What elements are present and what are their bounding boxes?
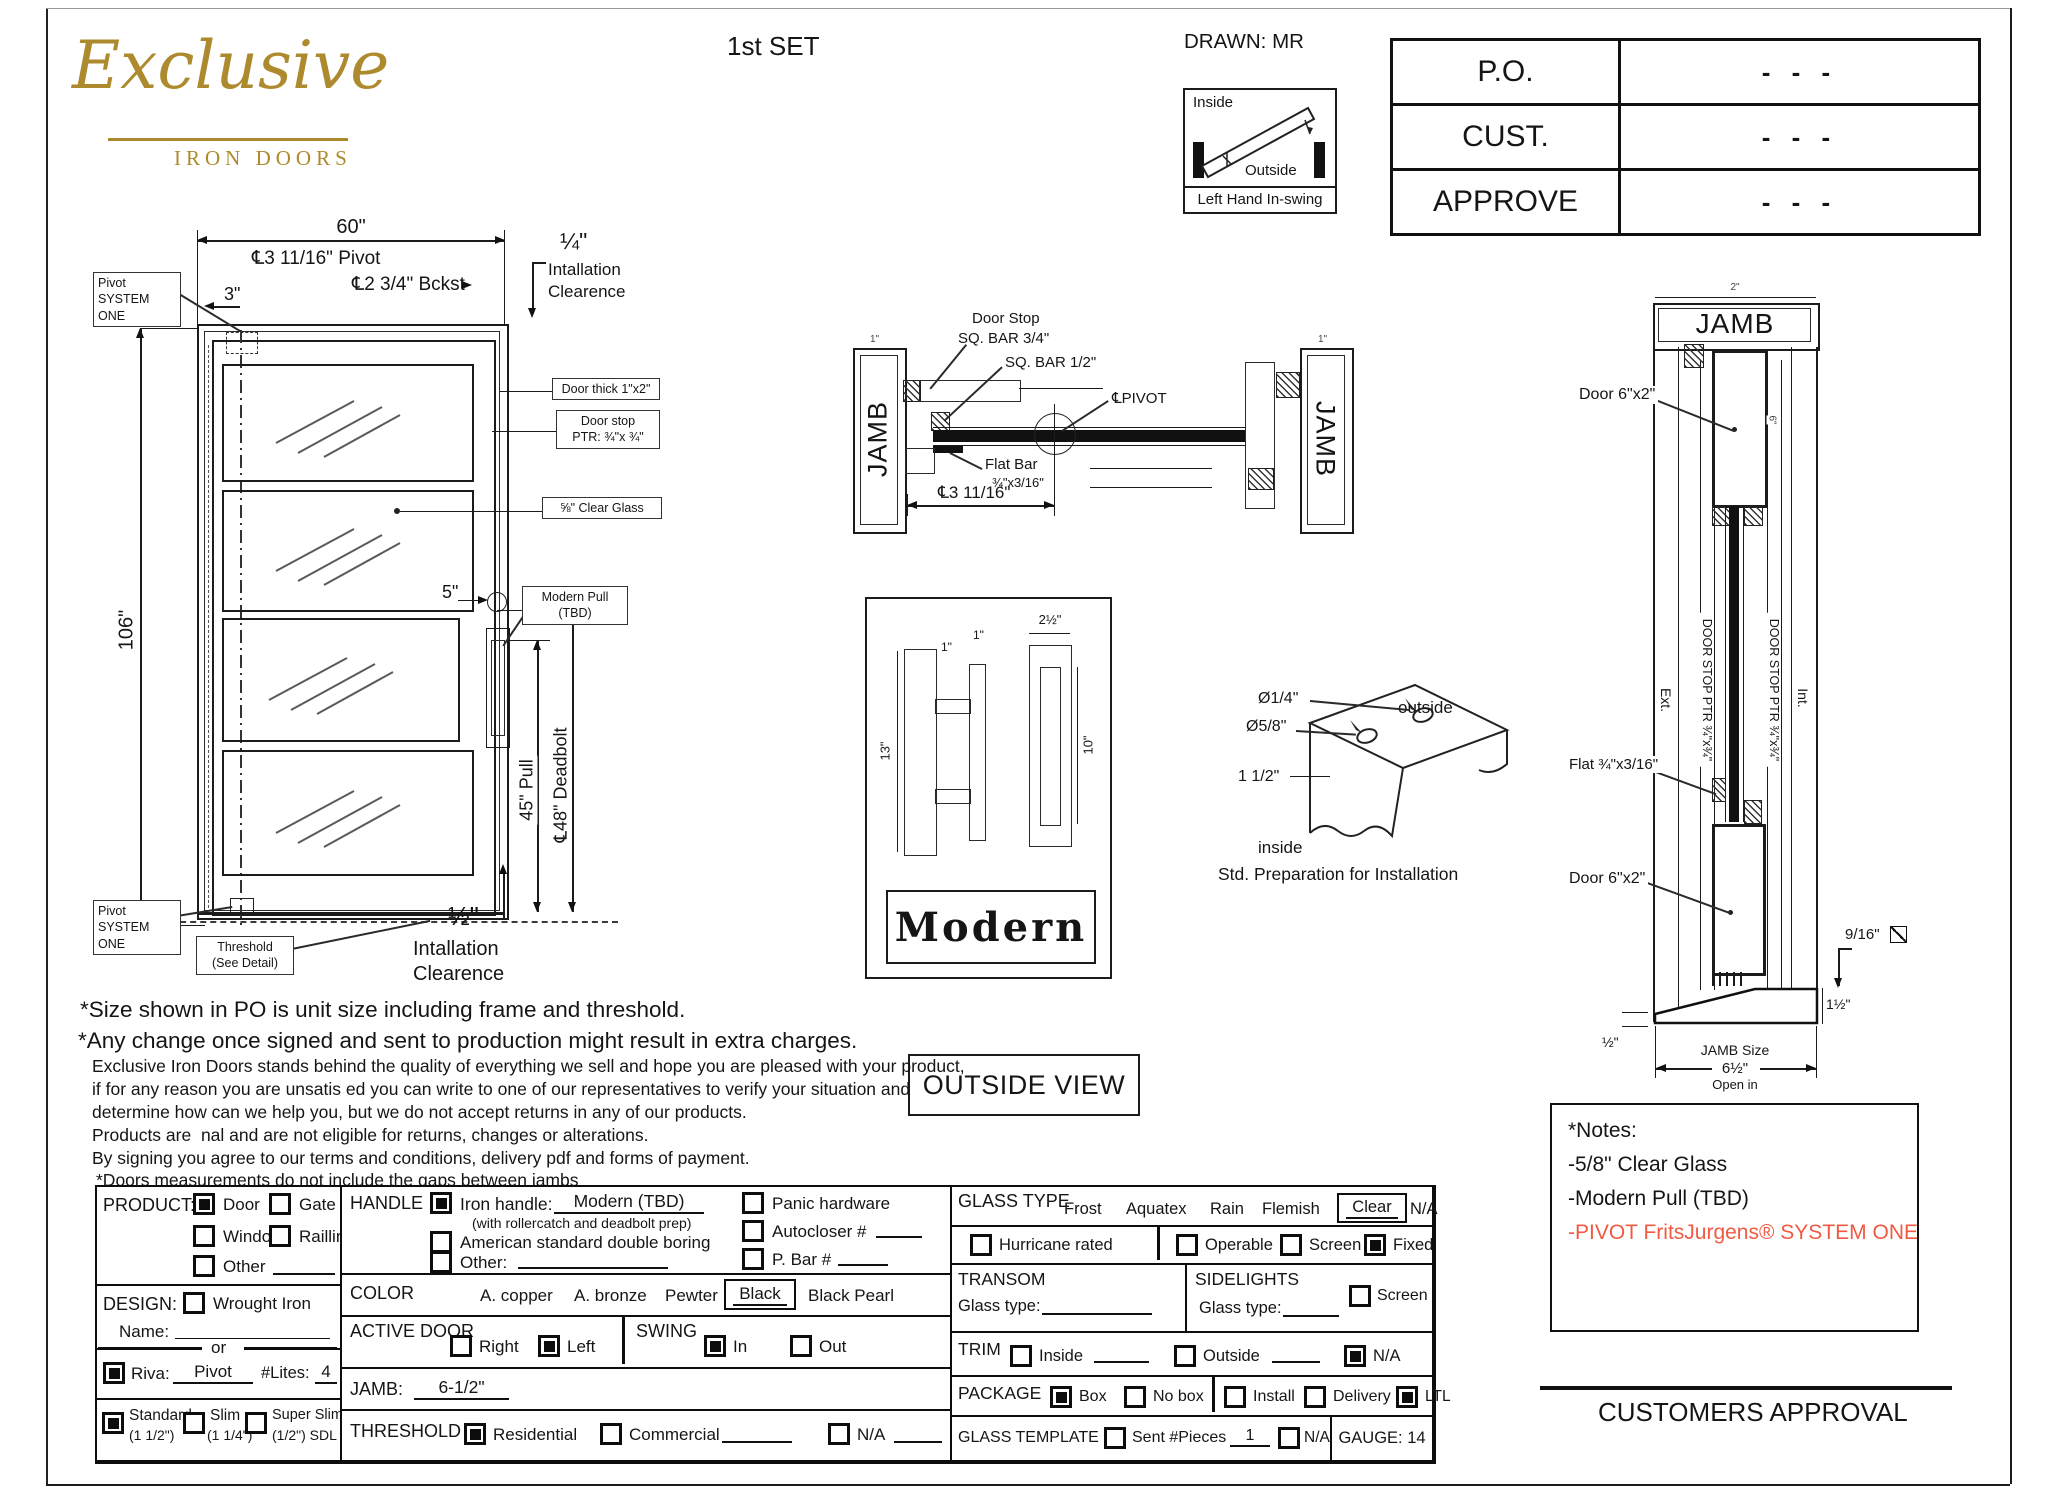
approve-label: APPROVE	[1433, 185, 1578, 219]
package-delivery-label: Delivery	[1333, 1388, 1391, 1406]
profile-section: Standard (1 1/2") Slim (1 1/4") Super Sl…	[95, 1398, 344, 1462]
panic-label: Panic hardware	[772, 1194, 890, 1214]
js-dim-6: 6"	[1767, 415, 1778, 424]
package-nobox-label: No box	[1153, 1388, 1204, 1406]
active-right-label: Right	[479, 1337, 519, 1357]
plan-dim-1-right: 1"	[1318, 334, 1327, 346]
operable-label: Operable	[1205, 1236, 1273, 1255]
border-line	[2010, 8, 2012, 1484]
product-other-label: Other	[223, 1257, 266, 1277]
glass-template-sent-checkbox[interactable]	[1104, 1427, 1126, 1449]
glass-aquatex-option[interactable]: Aquatex	[1126, 1200, 1187, 1219]
jamb-value[interactable]: 6-1/2"	[414, 1377, 509, 1400]
color-selected-value[interactable]: Black	[733, 1284, 787, 1306]
glass-marks	[258, 509, 438, 593]
trim-outside-checkbox[interactable]	[1174, 1345, 1196, 1367]
glass-flemish-option[interactable]: Flemish	[1262, 1200, 1320, 1219]
dim-arrow	[907, 501, 917, 509]
autocloser-blank[interactable]	[876, 1222, 922, 1238]
policy-line: determine how can we help you, but we do…	[92, 1102, 747, 1122]
notes-item-glass: -5/8" Clear Glass	[1568, 1153, 1727, 1177]
js-ext-label: Ext.	[1658, 688, 1674, 712]
pull-dim: 45" Pull	[517, 755, 538, 824]
swing-label: SWING	[636, 1321, 697, 1342]
package-ltl-checkbox[interactable]	[1396, 1386, 1418, 1408]
sidelights-label: SIDELIGHTS	[1195, 1269, 1299, 1289]
design-wrought-checkbox[interactable]	[183, 1292, 205, 1314]
trim-inside-blank[interactable]	[1094, 1347, 1149, 1363]
dim-arrow	[1806, 1064, 1816, 1072]
drawing-line	[1090, 468, 1212, 469]
glass-template-sent-label: Sent #Pieces	[1132, 1429, 1226, 1447]
dim-ext-line	[1622, 1012, 1648, 1013]
super-slim-sub: (1/2") SDL	[272, 1427, 337, 1443]
color-selected-box[interactable]: Black	[724, 1279, 796, 1310]
pivot-system-l2: SYSTEM ONE	[98, 291, 176, 324]
swing-out-label: Out	[819, 1337, 846, 1357]
commercial-blank[interactable]	[722, 1425, 792, 1443]
drawing-sheet: Exclusive IRON DOORS 1st SET DRAWN: MR I…	[0, 0, 2048, 1505]
js-int-label: Int.	[1795, 688, 1811, 707]
plan-sq-bar: SQ. BAR 1/2"	[1005, 354, 1096, 371]
glass-template-na-checkbox[interactable]	[1278, 1427, 1300, 1449]
leader-elbow	[532, 262, 534, 314]
handle-dim-1a: 1"	[941, 641, 952, 655]
border-line	[46, 1484, 2010, 1486]
pivot-system2-l1: Pivot	[98, 903, 176, 919]
dim-5: 5"	[442, 582, 458, 603]
po-value[interactable]: - - -	[1762, 57, 1837, 88]
product-window-checkbox[interactable]	[193, 1225, 215, 1247]
leader-elbow	[503, 872, 505, 919]
package-box-checkbox[interactable]	[1050, 1386, 1072, 1408]
dim-arrow	[1656, 1064, 1666, 1072]
dim-line	[907, 505, 1054, 507]
leader-line	[500, 391, 552, 392]
hinge-stile-line	[208, 345, 209, 908]
riva-checkbox[interactable]	[103, 1362, 125, 1384]
plan-door-stop-l1: Door Stop	[972, 310, 1040, 327]
product-gate-checkbox[interactable]	[269, 1193, 291, 1215]
handle-dim-13: 13"	[878, 741, 893, 760]
approval-caption: CUSTOMERS APPROVAL	[1598, 1398, 1908, 1428]
logo-subtitle: IRON DOORS	[174, 146, 352, 170]
width-dim: 60"	[331, 216, 370, 239]
js-size-l1: JAMB Size	[1701, 1042, 1769, 1058]
dim-arrow	[462, 281, 472, 289]
js-door-slab	[1729, 506, 1739, 822]
handle-other-label: Other:	[460, 1253, 507, 1273]
sidelights-screen-label: Screen	[1377, 1287, 1428, 1305]
package-box-label: Box	[1079, 1388, 1107, 1406]
hatch-block	[1744, 506, 1763, 526]
glass-type-label: GLASS TYPE	[958, 1191, 1070, 1212]
dim-line	[1029, 633, 1070, 634]
plan-jamb-right-label: JAMB	[1310, 401, 1341, 477]
swing-in-label: In	[733, 1337, 747, 1357]
lites-label: #Lites:	[261, 1364, 310, 1383]
iron-handle-label: Iron handle:	[460, 1194, 552, 1214]
drawn-label: DRAWN: MR	[1184, 30, 1304, 54]
swing-caption: Left Hand In-swing	[1185, 186, 1335, 212]
clear-glass-callout: ⅝" Clear Glass	[542, 497, 662, 519]
hurricane-label: Hurricane rated	[999, 1236, 1113, 1255]
js-dim-916: 9/16"	[1845, 926, 1880, 943]
policy-line: Exclusive Iron Doors stands behind the q…	[92, 1056, 965, 1076]
transom-section: TRANSOM Glass type:	[950, 1263, 1189, 1335]
leader-elbow	[470, 918, 503, 920]
glass-template-pieces-value[interactable]: 1	[1230, 1427, 1270, 1447]
js-size-l2: 6½"	[1722, 1060, 1748, 1077]
handle-label: HANDLE	[350, 1193, 423, 1214]
sidelights-glass-blank[interactable]	[1283, 1299, 1339, 1317]
trim-inside-checkbox[interactable]	[1010, 1345, 1032, 1367]
slim-label: Slim	[210, 1407, 240, 1425]
product-section: PRODUCT: Door Gate Window Railling Other	[95, 1185, 344, 1288]
dim-line	[1822, 988, 1823, 1024]
js-dim-2: 2"	[1727, 282, 1742, 294]
product-railling-checkbox[interactable]	[269, 1225, 291, 1247]
glass-marks	[251, 638, 431, 722]
divider-line	[98, 1347, 202, 1350]
pbar-checkbox[interactable]	[742, 1248, 764, 1270]
glass-marks	[258, 381, 438, 465]
swing-diagram: Inside Outside Left Hand In-swing	[1183, 88, 1337, 214]
swing-outside-label: Outside	[1245, 162, 1297, 179]
swing-inside-label: Inside	[1193, 94, 1233, 111]
js-flat-label: Flat ¾"x3/16"	[1566, 756, 1661, 773]
pull-handle-inner	[491, 640, 505, 736]
pivot-system-callout: Pivot SYSTEM ONE	[93, 272, 181, 327]
modern-pull-callout: Modern Pull (TBD)	[522, 586, 628, 625]
handle-name-box: Modern	[886, 890, 1096, 964]
clearance-top-l2: Clearence	[548, 282, 626, 302]
dim-arrow	[528, 308, 536, 318]
handle-section: HANDLE Iron handle: Modern (TBD) (with r…	[340, 1185, 954, 1277]
leader-elbow	[1838, 948, 1852, 950]
super-slim-label: Super Slim	[272, 1407, 343, 1424]
threshold-na-checkbox[interactable]	[828, 1423, 850, 1445]
residential-label: Residential	[493, 1425, 577, 1445]
glass-panel	[222, 364, 474, 482]
pivot-circle	[1034, 413, 1076, 455]
js-dim-h: ½"	[1602, 1034, 1619, 1050]
handle-front-grip	[1040, 667, 1061, 826]
riva-value[interactable]: Pivot	[173, 1362, 253, 1384]
sidelights-screen-checkbox[interactable]	[1349, 1285, 1371, 1307]
threshold-na-label: N/A	[857, 1425, 885, 1445]
fixed-checkbox[interactable]	[1364, 1234, 1386, 1256]
modern-pull-l2: (TBD)	[527, 605, 623, 621]
transom-glass-label: Glass type:	[958, 1297, 1041, 1316]
or-label: or	[211, 1338, 226, 1358]
po-label: P.O.	[1477, 55, 1533, 89]
leader-elbow	[532, 262, 546, 264]
color-blackpearl-option[interactable]: Black Pearl	[808, 1286, 894, 1306]
threshold-section: THRESHOLD Residential Commercial N/A	[340, 1409, 954, 1462]
glass-selected-box[interactable]: Clear	[1337, 1193, 1407, 1223]
color-section: COLOR A. copper A. bronze Pewter Black B…	[340, 1273, 954, 1319]
js-door-bottom-label: Door 6"x2"	[1566, 870, 1648, 888]
section-divider	[1212, 1377, 1215, 1412]
js-jamb-title: JAMB	[1696, 308, 1775, 340]
drawing-line	[1090, 487, 1212, 488]
hurricane-checkbox[interactable]	[970, 1234, 992, 1256]
hatch-block	[1712, 778, 1726, 802]
american-boring-checkbox[interactable]	[430, 1231, 452, 1253]
leader-line	[950, 452, 983, 469]
dim-ext-line	[197, 230, 198, 324]
policy-line: By signing you agree to our terms and co…	[92, 1148, 750, 1168]
iron-handle-checkbox[interactable]	[430, 1192, 452, 1214]
dim-line	[1655, 297, 1816, 298]
trim-outside-blank[interactable]	[1272, 1347, 1320, 1363]
trim-inside-label: Inside	[1039, 1347, 1083, 1366]
leader-line	[400, 511, 542, 512]
sidelights-section: SIDELIGHTS Glass type: Screen	[1185, 1263, 1434, 1335]
product-door-checkbox[interactable]	[193, 1193, 215, 1215]
drawing-line	[933, 445, 1245, 446]
dim-ext-line	[1622, 1026, 1648, 1027]
clearance-top-l1: Intallation	[548, 260, 621, 280]
js-size-l3: Open in	[1712, 1078, 1758, 1093]
handle-other-checkbox[interactable]	[430, 1251, 452, 1273]
swing-out-checkbox[interactable]	[790, 1335, 812, 1357]
gauge-value: GAUGE: 14	[1338, 1429, 1425, 1448]
policy-line: Products are nal and are not eligible fo…	[92, 1125, 648, 1145]
lites-value[interactable]: 4	[315, 1362, 337, 1384]
color-label: COLOR	[350, 1283, 414, 1304]
plan-pivot-label: ℄PIVOT	[1112, 390, 1167, 407]
standard-sub: (1 1/2")	[129, 1427, 174, 1443]
glass-rain-option[interactable]: Rain	[1210, 1200, 1244, 1219]
section-divider	[622, 1317, 625, 1364]
approve-value[interactable]: - - -	[1762, 187, 1837, 218]
drawing-line	[933, 427, 1245, 428]
leader-line	[492, 431, 556, 432]
screen-checkbox[interactable]	[1280, 1234, 1302, 1256]
drawing-line	[1725, 506, 1726, 822]
dim-line	[897, 651, 898, 852]
sidelights-glass-label: Glass type:	[1199, 1299, 1282, 1318]
slim-checkbox[interactable]	[183, 1412, 205, 1434]
pivot-system-callout-bottom: Pivot SYSTEM ONE	[93, 900, 181, 955]
glass-panel	[222, 490, 474, 612]
product-label: PRODUCT:	[103, 1195, 195, 1216]
product-other-blank[interactable]	[273, 1257, 335, 1275]
border-line	[46, 8, 2010, 9]
pivot-dim: ℄3 11/16" Pivot	[252, 248, 380, 270]
glass-panel	[222, 618, 460, 742]
signature-line[interactable]	[1540, 1386, 1952, 1390]
trim-label: TRIM	[958, 1339, 1001, 1359]
dim-line	[212, 306, 240, 308]
drawing-line	[1019, 388, 1103, 389]
jamb-section-row: JAMB: 6-1/2"	[340, 1367, 954, 1413]
plan-door-stop-l2: SQ. BAR 3/4"	[958, 330, 1049, 347]
cust-value[interactable]: - - -	[1762, 122, 1837, 153]
js-dim-1h: 1½"	[1826, 996, 1850, 1012]
handle-name: Modern	[895, 904, 1088, 951]
door-thick-callout: Door thick 1"x2"	[552, 378, 660, 400]
screen-label: Screen	[1309, 1236, 1361, 1255]
notes-box: *Notes: -5/8" Clear Glass -Modern Pull (…	[1550, 1103, 1919, 1332]
note-size: *Size shown in PO is unit size including…	[80, 997, 685, 1023]
dim-ext-line	[510, 640, 550, 641]
trim-na-checkbox[interactable]	[1344, 1345, 1366, 1367]
clearance-bottom-l2: Clearence	[413, 963, 504, 986]
glass-template-section: GLASS TEMPLATE Sent #Pieces 1 N/A	[950, 1415, 1334, 1462]
autocloser-label: Autocloser #	[772, 1222, 867, 1242]
border-line	[46, 8, 48, 1484]
leader-line	[282, 920, 430, 952]
pbar-blank[interactable]	[838, 1250, 888, 1266]
active-left-checkbox[interactable]	[538, 1335, 560, 1357]
dim-arrow	[136, 328, 144, 338]
active-left-label: Left	[567, 1337, 595, 1357]
plan-flat-bar-l1: Flat Bar	[985, 456, 1038, 473]
handle-standoff	[935, 789, 971, 804]
residential-checkbox[interactable]	[464, 1423, 486, 1445]
riva-label: Riva:	[131, 1364, 170, 1384]
handle-grip	[969, 664, 986, 841]
dim-arrow	[568, 902, 576, 912]
active-door-section: ACTIVE DOOR Right Left SWING In Out	[340, 1315, 954, 1371]
dim-line	[140, 328, 142, 926]
clear-glass-text: ⅝" Clear Glass	[547, 500, 657, 516]
pivot-system-l1: Pivot	[98, 275, 176, 291]
note-change: *Any change once signed and sent to prod…	[78, 1028, 857, 1054]
trim-outside-label: Outside	[1203, 1347, 1260, 1366]
product-other-checkbox[interactable]	[193, 1255, 215, 1277]
dim-ext-line	[1816, 1026, 1817, 1078]
glass-na-option[interactable]: N/A	[1410, 1200, 1438, 1219]
clearance-bottom-frac: ½"	[448, 902, 479, 932]
js-door-top	[1712, 350, 1768, 508]
handle-detail-box: 13" 1" 1" 2½" 10" Modern	[865, 597, 1112, 979]
threshold-l1: Threshold	[201, 939, 289, 955]
color-bronze-option[interactable]: A. bronze	[574, 1286, 647, 1306]
panic-checkbox[interactable]	[742, 1192, 764, 1214]
hatch-block	[931, 412, 950, 431]
drawing-line	[1743, 506, 1744, 822]
js-stop-right-label: DOOR STOP PTR ¾"x¾"	[1767, 613, 1781, 767]
autocloser-checkbox[interactable]	[742, 1220, 764, 1242]
dim-line	[1077, 667, 1078, 824]
deadbolt-circle	[487, 592, 507, 612]
package-nobox-checkbox[interactable]	[1124, 1386, 1146, 1408]
glass-marks	[258, 771, 438, 855]
package-section: PACKAGE Box No box Install Delivery LTL	[950, 1375, 1434, 1419]
drawing-line	[1653, 347, 1655, 1022]
package-label: PACKAGE	[958, 1383, 1041, 1403]
package-install-checkbox[interactable]	[1224, 1386, 1246, 1408]
hatch-block	[1248, 468, 1274, 490]
color-copper-option[interactable]: A. copper	[480, 1286, 553, 1306]
dim-line	[197, 240, 505, 242]
pbar-label: P. Bar #	[772, 1250, 831, 1270]
product-door-label: Door	[223, 1195, 260, 1215]
prep-dim-oneandhalf: 1 1/2"	[1238, 768, 1279, 786]
commercial-checkbox[interactable]	[600, 1423, 622, 1445]
super-slim-checkbox[interactable]	[245, 1412, 267, 1434]
handle-plate	[904, 649, 937, 856]
js-door-bottom	[1712, 824, 1766, 976]
notes-item-pull: -Modern Pull (TBD)	[1568, 1187, 1749, 1211]
handle-other-blank[interactable]	[518, 1251, 668, 1269]
plan-jamb-left-label: JAMB	[863, 401, 894, 477]
glass-template-na-label: N/A	[1304, 1429, 1330, 1447]
transom-label: TRANSOM	[958, 1269, 1046, 1289]
iron-handle-value[interactable]: Modern (TBD)	[554, 1191, 704, 1214]
dim-ext-line	[140, 328, 198, 329]
dim-arrow	[478, 596, 488, 604]
dim-ext-line	[907, 494, 908, 516]
deadbolt-dim: ℄48" Deadbolt	[551, 723, 572, 846]
swing-in-checkbox[interactable]	[704, 1335, 726, 1357]
glass-type-section: GLASS TYPE Frost Aquatex Rain Flemish Cl…	[950, 1185, 1434, 1229]
threshold-l2: (See Detail)	[201, 955, 289, 971]
backset-dim: ℄2 3/4" Bckst	[352, 274, 465, 296]
handle-dim-10: 10"	[1081, 735, 1096, 754]
prep-inside-label: inside	[1258, 838, 1302, 858]
standard-checkbox[interactable]	[102, 1412, 124, 1434]
trim-section: TRIM Inside Outside N/A	[950, 1331, 1434, 1379]
door-slab	[933, 430, 1245, 442]
drawing-line	[1816, 347, 1818, 1022]
divider-line	[244, 1347, 337, 1350]
design-name-blank[interactable]	[175, 1322, 330, 1340]
dim-arrow	[1834, 978, 1842, 988]
prep-dim-fiveeighths: Ø5/8"	[1246, 718, 1286, 736]
dim-ext-line	[1054, 462, 1055, 516]
package-delivery-checkbox[interactable]	[1304, 1386, 1326, 1408]
hatch-block	[1712, 506, 1730, 526]
prep-dim-quarter: Ø1/4"	[1258, 690, 1298, 708]
flat-bar-strip	[933, 446, 963, 453]
handle-standoff	[935, 699, 971, 714]
glass-frost-option[interactable]: Frost	[1064, 1200, 1102, 1219]
active-right-checkbox[interactable]	[450, 1335, 472, 1357]
fixed-label: Fixed	[1393, 1236, 1433, 1255]
clearance-top-frac: ¼"	[560, 228, 587, 254]
swing-caption-text: Left Hand In-swing	[1197, 191, 1322, 208]
glass-selected-value[interactable]: Clear	[1346, 1198, 1397, 1219]
design-label: DESIGN:	[103, 1294, 177, 1315]
leader-dot	[394, 508, 400, 514]
threshold-callout: Threshold (See Detail)	[196, 936, 294, 975]
operable-checkbox[interactable]	[1176, 1234, 1198, 1256]
js-stop-left-label: DOOR STOP PTR ¾"x¾"	[1700, 613, 1714, 767]
handle-dim-1b: 1"	[973, 629, 984, 643]
plan-dim: ℄3 11/16"	[938, 483, 1010, 503]
hatch-block	[1684, 344, 1704, 368]
notes-item-pivot: -PIVOT FritsJurgens® SYSTEM ONE	[1568, 1221, 1918, 1245]
color-pewter-option[interactable]: Pewter	[665, 1286, 718, 1306]
design-wrought-label: Wrought Iron	[213, 1294, 311, 1314]
prep-caption: Std. Preparation for Installation	[1218, 864, 1458, 884]
transom-glass-blank[interactable]	[1042, 1297, 1152, 1315]
glass-options-section: Hurricane rated Operable Screen Fixed	[950, 1225, 1434, 1267]
threshold-na-blank[interactable]	[894, 1425, 942, 1443]
door-stop-callout: Door stop PTR: ¾"x ¾"	[556, 410, 660, 449]
drawing-line	[1781, 360, 1782, 990]
pivot-system2-l2: SYSTEM ONE	[98, 919, 176, 952]
pivot-centerline	[1054, 404, 1055, 462]
threshold-label: THRESHOLD	[350, 1421, 461, 1442]
section-divider	[1157, 1227, 1160, 1260]
dim-ext-line	[504, 230, 505, 324]
